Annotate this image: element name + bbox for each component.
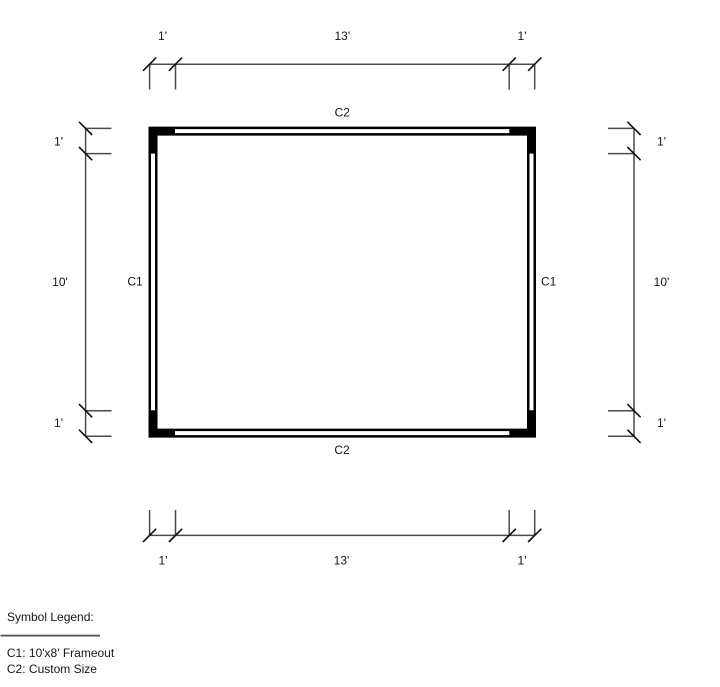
svg-text:C2: Custom Size: C2: Custom Size	[7, 662, 97, 676]
svg-text:1': 1'	[54, 134, 63, 148]
svg-text:1': 1'	[518, 29, 527, 43]
svg-text:1': 1'	[657, 134, 666, 148]
svg-text:C2: C2	[335, 106, 351, 120]
svg-text:C1: C1	[127, 274, 143, 288]
svg-text:C2: C2	[334, 443, 350, 457]
svg-text:1': 1'	[54, 416, 63, 430]
svg-text:1': 1'	[657, 416, 666, 430]
svg-text:Symbol Legend:: Symbol Legend:	[7, 610, 94, 624]
svg-text:C1: 10'x8' Frameout: C1: 10'x8' Frameout	[7, 646, 115, 660]
svg-text:13': 13'	[334, 554, 350, 568]
svg-text:1': 1'	[159, 554, 168, 568]
svg-text:13': 13'	[334, 29, 350, 43]
svg-text:10': 10'	[654, 275, 670, 289]
svg-text:1': 1'	[158, 29, 167, 43]
svg-text:1': 1'	[518, 554, 527, 568]
svg-text:C1: C1	[541, 274, 557, 288]
svg-text:10': 10'	[52, 275, 68, 289]
